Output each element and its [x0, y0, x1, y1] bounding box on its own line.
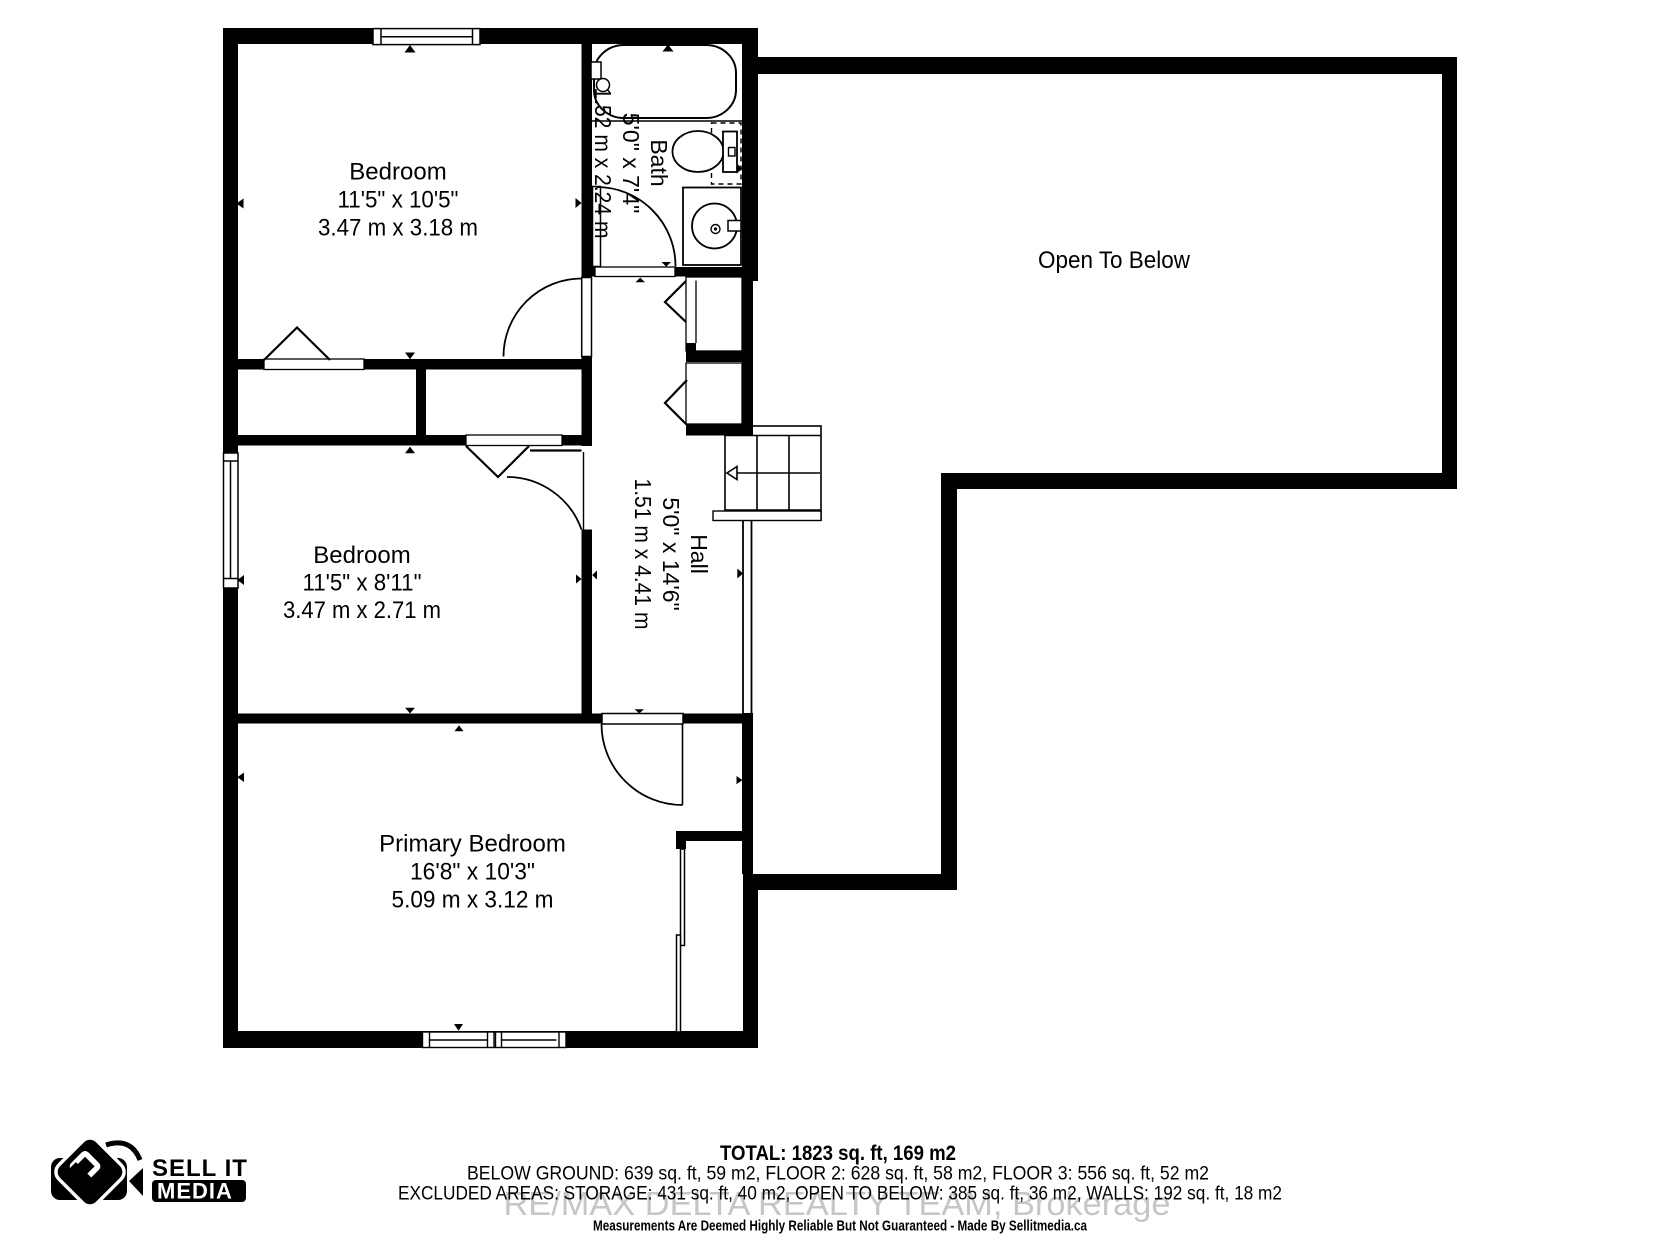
svg-text:16'8" x 10'3": 16'8" x 10'3": [410, 859, 535, 886]
svg-text:EXCLUDED AREAS: STORAGE: 431 s: EXCLUDED AREAS: STORAGE: 431 sq. ft, 40 …: [398, 1183, 1282, 1205]
svg-text:MEDIA: MEDIA: [157, 1179, 233, 1204]
svg-text:5'0" x 7'4": 5'0" x 7'4": [618, 113, 644, 214]
svg-text:5'0" x 14'6": 5'0" x 14'6": [658, 497, 684, 610]
svg-text:Hall: Hall: [686, 534, 712, 574]
svg-text:Open To Below: Open To Below: [1038, 247, 1191, 274]
svg-text:11'5" x 10'5": 11'5" x 10'5": [338, 187, 459, 214]
svg-text:Primary Bedroom: Primary Bedroom: [379, 831, 566, 858]
svg-text:Measurements Are Deemed Highly: Measurements Are Deemed Highly Reliable …: [593, 1218, 1088, 1235]
svg-text:1.52 m x 2.24 m: 1.52 m x 2.24 m: [590, 88, 616, 239]
svg-text:3.47 m x 3.18 m: 3.47 m x 3.18 m: [318, 215, 478, 242]
svg-text:1.51 m x 4.41 m: 1.51 m x 4.41 m: [630, 479, 656, 630]
svg-text:Bedroom: Bedroom: [313, 542, 410, 569]
svg-text:11'5" x 8'11": 11'5" x 8'11": [303, 570, 422, 597]
svg-text:BELOW GROUND: 639 sq. ft, 59 m: BELOW GROUND: 639 sq. ft, 59 m2, FLOOR 2…: [467, 1163, 1209, 1185]
svg-text:Bath: Bath: [646, 139, 672, 186]
svg-text:5.09 m x 3.12 m: 5.09 m x 3.12 m: [392, 887, 554, 914]
svg-text:Bedroom: Bedroom: [349, 159, 446, 186]
svg-text:3.47 m x 2.71 m: 3.47 m x 2.71 m: [283, 597, 441, 624]
